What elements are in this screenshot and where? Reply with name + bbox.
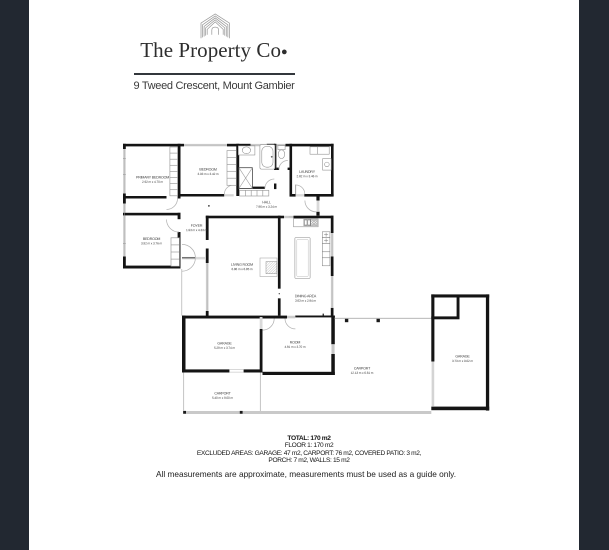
svg-text:BEDROOM: BEDROOM	[143, 237, 160, 241]
svg-text:PRIMARY BEDROOM: PRIMARY BEDROOM	[136, 175, 169, 179]
svg-text:BEDROOM: BEDROOM	[199, 168, 216, 172]
svg-text:HALL: HALL	[262, 200, 270, 204]
svg-text:5.29 m x 3.74 m: 5.29 m x 3.74 m	[214, 346, 236, 350]
svg-text:ROOM: ROOM	[290, 340, 301, 344]
svg-text:CARPORT: CARPORT	[214, 391, 231, 395]
svg-text:7.96 m x 3.24 m: 7.96 m x 3.24 m	[256, 205, 278, 209]
svg-text:FOYER: FOYER	[191, 224, 203, 228]
svg-text:2.82 m x 3.46 m: 2.82 m x 3.46 m	[297, 174, 319, 178]
svg-text:3.93 m x 3.42 m: 3.93 m x 3.42 m	[198, 172, 220, 176]
svg-text:3.92 m x 3.76 m: 3.92 m x 3.76 m	[141, 241, 163, 245]
svg-text:CARPORT: CARPORT	[354, 367, 371, 371]
svg-text:12.13 m x 6.61 m: 12.13 m x 6.61 m	[351, 371, 374, 375]
svg-text:3.63 m x 2.94 m: 3.63 m x 2.94 m	[295, 299, 317, 303]
svg-text:LAUNDRY: LAUNDRY	[299, 170, 316, 174]
svg-text:GARAGE: GARAGE	[455, 355, 470, 359]
svg-text:3.73 m x 9.02 m: 3.73 m x 9.02 m	[452, 359, 474, 363]
svg-text:2.92 m x 4.70 m: 2.92 m x 4.70 m	[142, 180, 164, 184]
svg-text:GARAGE: GARAGE	[217, 341, 232, 345]
svg-text:1.93 m x 4.33 m: 1.93 m x 4.33 m	[186, 228, 208, 232]
svg-text:4.81 m x 3.70 m: 4.81 m x 3.70 m	[284, 345, 306, 349]
svg-text:6.86 m x 6.85 m: 6.86 m x 6.85 m	[231, 267, 253, 271]
svg-text:5.40 m x 9.00 m: 5.40 m x 9.00 m	[212, 396, 234, 400]
